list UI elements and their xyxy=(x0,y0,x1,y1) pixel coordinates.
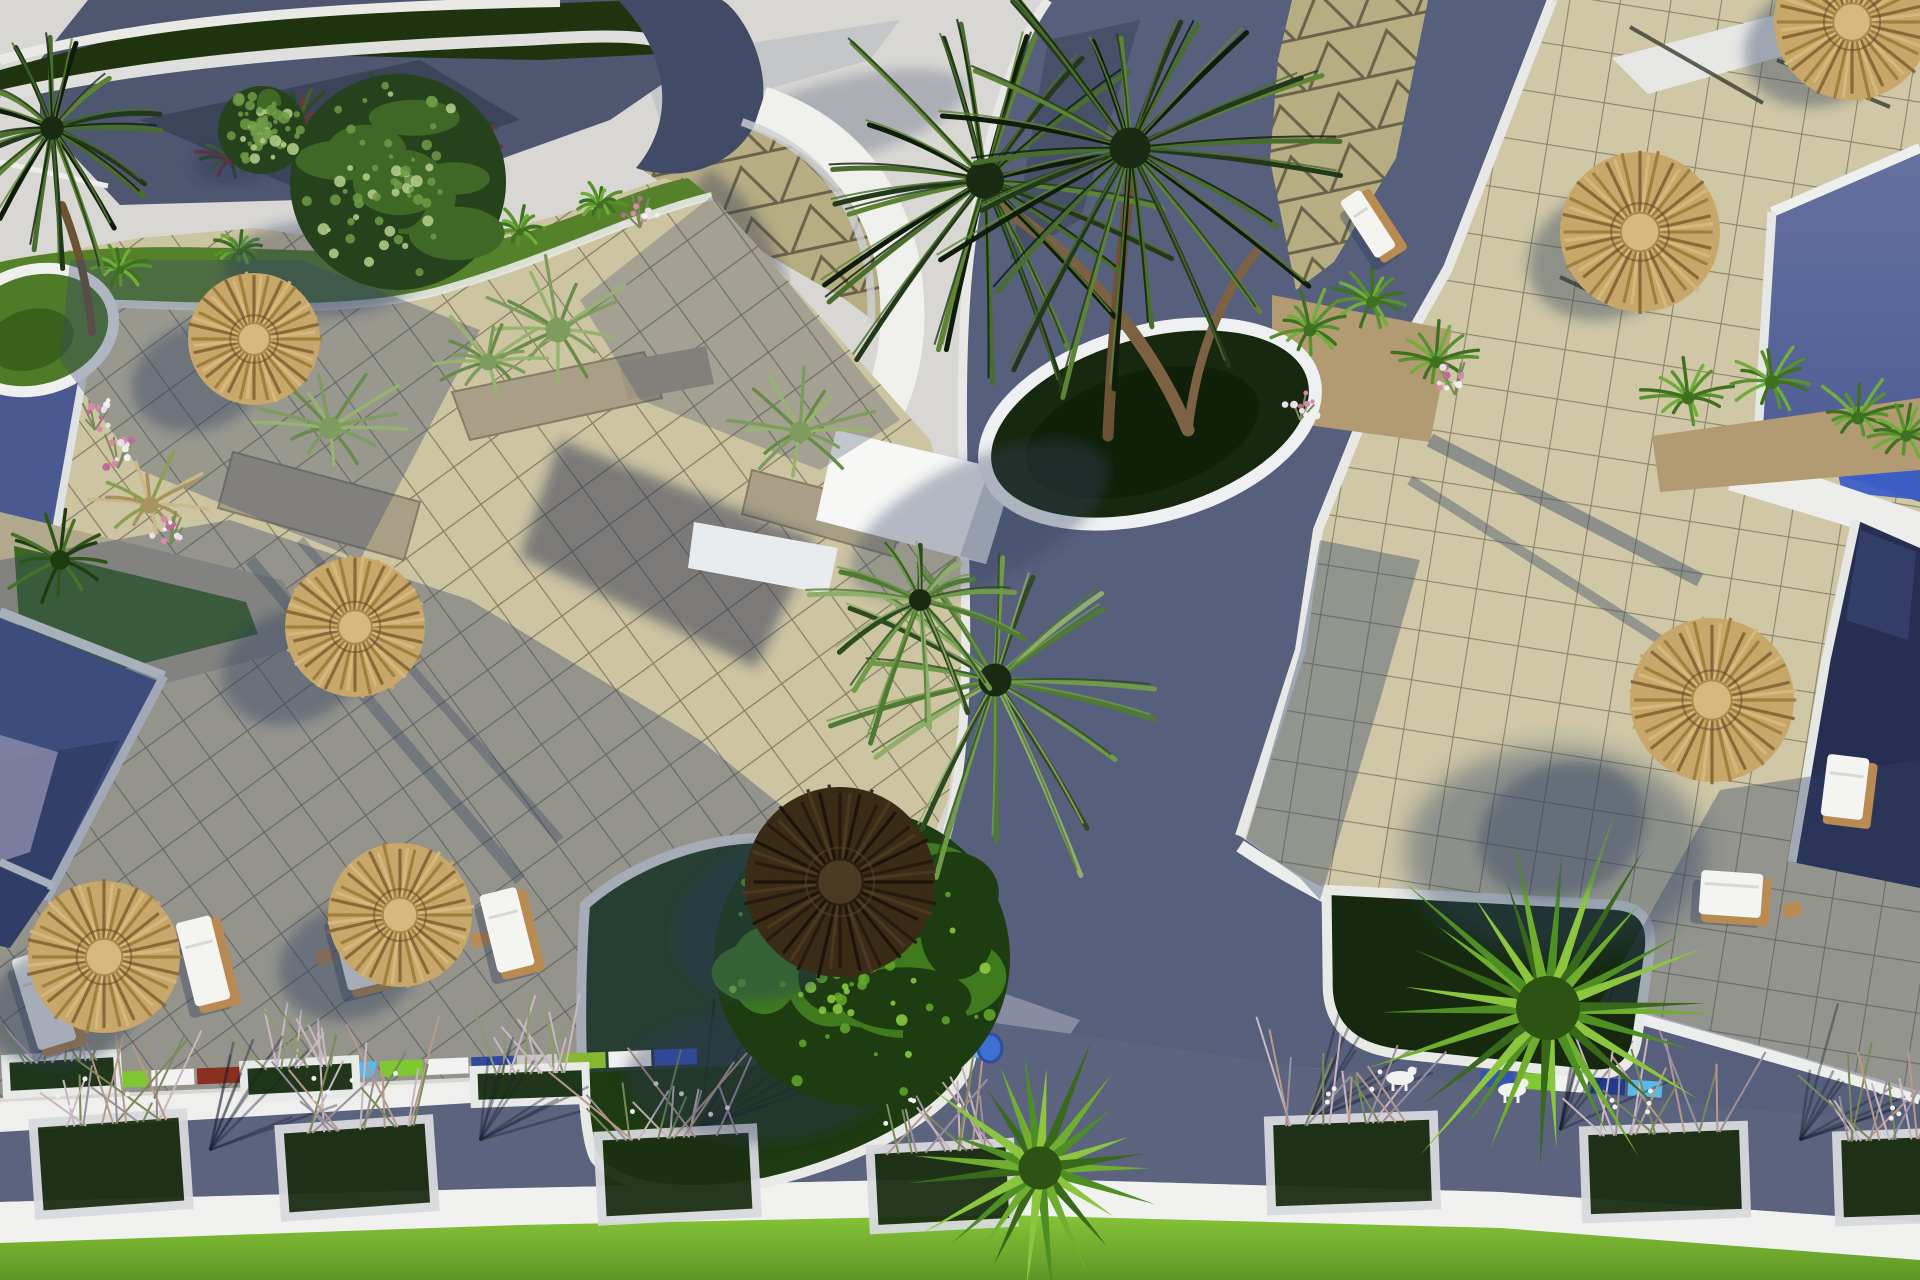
lounge-chair xyxy=(1690,869,1773,928)
scene-svg xyxy=(0,0,1920,1280)
aerial-resort-render xyxy=(0,0,1920,1280)
lounge-chair xyxy=(1811,753,1878,832)
